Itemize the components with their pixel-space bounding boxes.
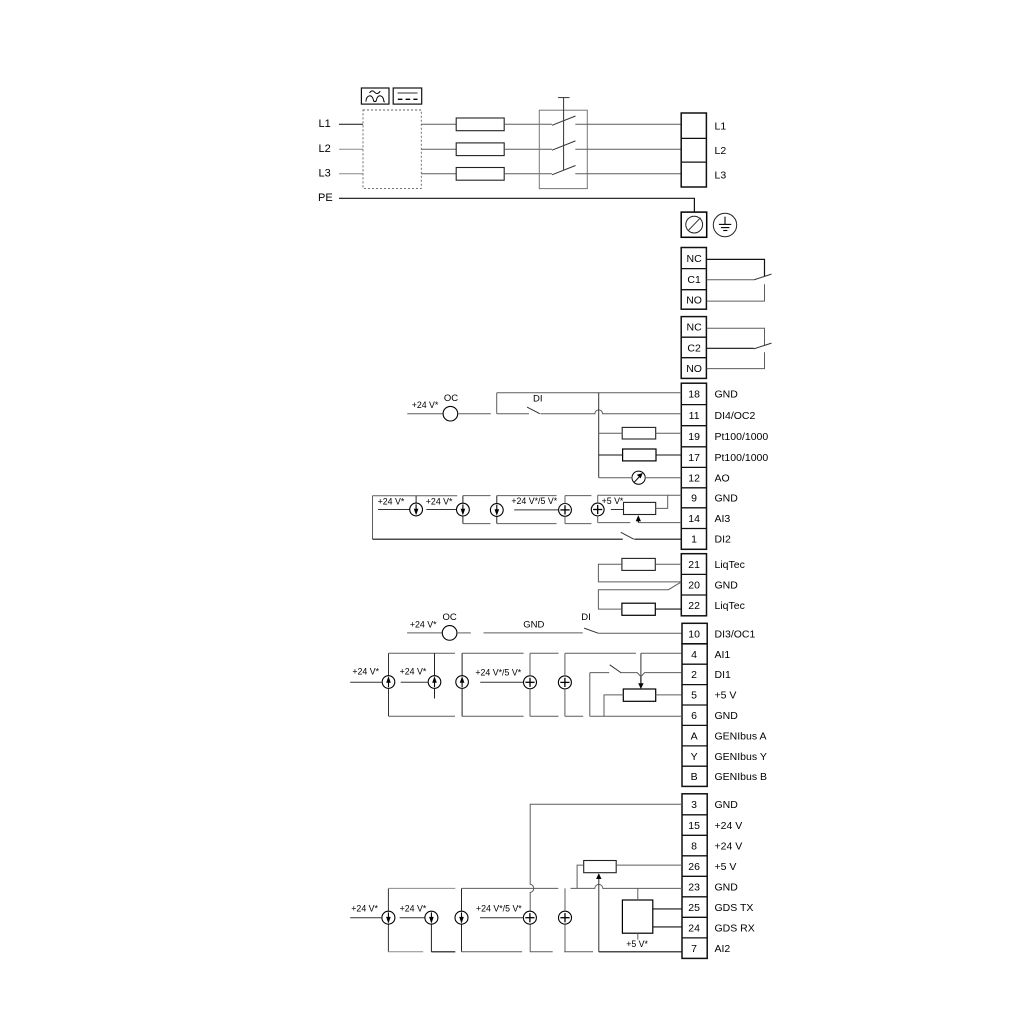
svg-text:L3: L3 [715,169,727,181]
svg-text:GND: GND [523,619,544,630]
svg-text:C1: C1 [687,274,701,286]
svg-text:+5 V: +5 V [715,690,737,702]
svg-text:+24 V*: +24 V* [410,619,437,629]
svg-text:10: 10 [688,628,700,640]
svg-text:DI2: DI2 [715,534,732,546]
svg-text:+24 V*: +24 V* [351,904,378,914]
svg-text:3: 3 [691,799,697,811]
svg-text:L3: L3 [319,168,331,180]
svg-text:B: B [691,771,698,783]
svg-text:OC: OC [444,393,458,404]
svg-text:DI: DI [533,394,543,405]
svg-text:+24 V*/5 V*: +24 V*/5 V* [511,496,557,506]
svg-text:23: 23 [688,881,700,893]
svg-text:Pt100/1000: Pt100/1000 [715,431,769,443]
svg-text:19: 19 [688,431,700,443]
svg-text:5: 5 [691,690,697,702]
svg-text:C2: C2 [687,342,701,354]
svg-text:LiqTec: LiqTec [715,600,745,612]
svg-text:L2: L2 [319,143,331,155]
svg-text:9: 9 [691,493,697,505]
svg-text:AI1: AI1 [715,649,731,661]
svg-text:GND: GND [715,710,739,722]
svg-text:15: 15 [688,820,700,832]
svg-text:GND: GND [715,580,739,592]
svg-text:+24 V*: +24 V* [426,496,453,506]
svg-text:+5 V*: +5 V* [626,939,648,949]
svg-text:12: 12 [688,472,700,484]
svg-text:GND: GND [715,389,739,401]
svg-text:14: 14 [688,513,700,525]
svg-text:20: 20 [688,580,700,592]
svg-text:17: 17 [688,452,700,464]
svg-text:DI: DI [581,612,591,623]
svg-text:GND: GND [715,493,739,505]
svg-text:+24 V*: +24 V* [352,666,379,676]
svg-text:+24 V: +24 V [715,820,743,832]
svg-text:+24 V: +24 V [715,840,743,852]
svg-text:GND: GND [715,799,739,811]
svg-text:25: 25 [688,902,700,914]
svg-text:+5 V*: +5 V* [602,496,624,506]
svg-text:6: 6 [691,710,697,722]
svg-text:+24 V*: +24 V* [400,666,427,676]
svg-text:DI1: DI1 [715,669,732,681]
svg-text:+24 V*/5 V*: +24 V*/5 V* [475,667,521,677]
svg-text:1: 1 [691,534,697,546]
svg-text:GENIbus B: GENIbus B [715,771,768,783]
svg-text:+24 V*/5 V*: +24 V*/5 V* [476,904,522,914]
svg-text:L1: L1 [715,121,727,133]
svg-text:GENIbus Y: GENIbus Y [715,751,767,763]
svg-text:L2: L2 [715,145,727,157]
svg-text:26: 26 [688,861,700,873]
svg-text:22: 22 [688,600,700,612]
svg-text:NC: NC [687,322,703,334]
svg-text:+24 V*: +24 V* [400,904,427,914]
svg-text:NC: NC [687,253,703,265]
svg-text:PE: PE [318,192,333,204]
svg-text:GND: GND [715,881,739,893]
svg-text:AI3: AI3 [715,513,731,525]
svg-text:DI4/OC2: DI4/OC2 [715,410,756,422]
svg-text:2: 2 [691,669,697,681]
svg-text:+24 V*: +24 V* [378,496,405,506]
svg-text:NO: NO [686,294,702,306]
svg-text:NO: NO [686,363,702,375]
svg-text:GDS TX: GDS TX [715,902,754,914]
svg-text:GDS RX: GDS RX [715,922,755,934]
svg-text:AI2: AI2 [715,943,731,955]
svg-text:Pt100/1000: Pt100/1000 [715,452,769,464]
svg-text:DI3/OC1: DI3/OC1 [715,628,756,640]
svg-text:18: 18 [688,389,700,401]
svg-text:8: 8 [691,840,697,852]
svg-text:+5 V: +5 V [715,861,737,873]
svg-text:AO: AO [715,472,730,484]
svg-text:L1: L1 [319,118,331,130]
svg-text:GENIbus A: GENIbus A [715,730,767,742]
svg-text:+24 V*: +24 V* [412,400,439,410]
svg-text:LiqTec: LiqTec [715,559,745,571]
svg-text:7: 7 [691,943,697,955]
svg-text:11: 11 [689,410,700,422]
svg-text:24: 24 [688,922,700,934]
svg-text:Y: Y [691,751,698,763]
svg-text:OC: OC [443,612,457,623]
svg-text:4: 4 [691,649,697,661]
svg-text:21: 21 [688,559,700,571]
svg-text:A: A [691,730,698,742]
